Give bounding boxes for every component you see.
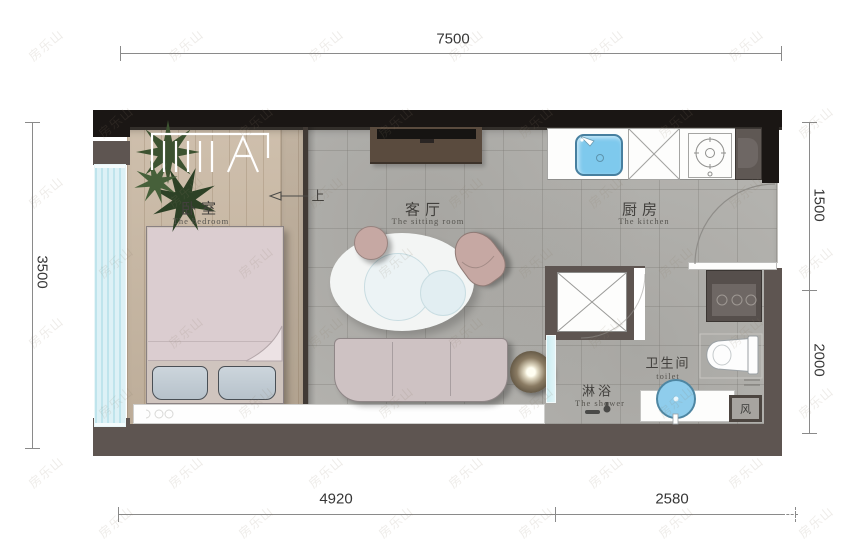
dim-top-tick-r	[781, 46, 782, 61]
dim-right-upper-value: 1500	[811, 188, 828, 221]
bedroom-window-curtain	[95, 165, 125, 426]
bottom-ledge	[133, 404, 545, 424]
room-label-toilet: 卫生间	[645, 353, 690, 372]
vent-label: 风	[740, 401, 751, 417]
bathroom-door-gap	[634, 268, 645, 340]
dim-right-lower-value: 2000	[811, 343, 828, 376]
watermark-text: 房乐山	[24, 171, 67, 212]
wall-right-upper	[762, 110, 779, 183]
dim-left-tick-t	[25, 122, 40, 123]
kitchen-sink	[575, 134, 623, 176]
watermark-text: 房乐山	[24, 311, 67, 352]
step-up-label: 上	[311, 186, 324, 205]
watermark-text: 房乐山	[164, 24, 207, 65]
kitchen-cabinet	[628, 128, 680, 180]
bedroom-platform-strip	[281, 127, 303, 424]
pillow-left	[152, 366, 208, 400]
shower-tray	[557, 272, 627, 332]
watermark-text: 房乐山	[794, 241, 837, 282]
room-label-kitchen-en: The kitchen	[618, 216, 669, 226]
dim-bottom-dash	[782, 514, 798, 515]
entry-corridor-edge	[777, 183, 778, 263]
room-label-toilet-en: toilet	[656, 371, 679, 381]
watermark-text: 房乐山	[724, 451, 767, 492]
armchair-round	[354, 226, 388, 260]
watermark-text: 房乐山	[724, 24, 767, 65]
sofa-seam-1	[392, 342, 393, 396]
dim-bottom-tick-m	[555, 507, 556, 522]
room-label-shower-en: The shower	[575, 398, 625, 408]
dim-bottom-right-value: 2580	[655, 491, 688, 508]
sofa	[334, 338, 508, 402]
divider-shadow	[308, 127, 316, 424]
pillow-right	[218, 366, 276, 400]
watermark-text: 房乐山	[304, 451, 347, 492]
watermark-text: 房乐山	[234, 501, 277, 542]
vanity-counter	[640, 390, 735, 422]
dim-top-value: 7500	[436, 31, 469, 48]
watermark-text: 房乐山	[514, 501, 557, 542]
watermark-text: 房乐山	[584, 24, 627, 65]
sofa-seam-2	[450, 342, 451, 396]
rug-circle-small	[420, 270, 466, 316]
wall-left-stub	[93, 141, 130, 165]
entry-threshold	[688, 262, 777, 270]
stove	[688, 133, 732, 178]
room-label-sitting-en: The sitting room	[392, 216, 465, 226]
dim-top-tick-l	[120, 46, 121, 61]
washing-machine-panel	[712, 284, 756, 316]
watermark-text: 房乐山	[164, 451, 207, 492]
watermark-text: 房乐山	[374, 501, 417, 542]
shower-glass-panel	[546, 335, 556, 403]
dim-bottom-left-value: 4920	[319, 491, 352, 508]
dim-top-line	[120, 53, 782, 54]
watermark-text: 房乐山	[304, 24, 347, 65]
dim-left-value: 3500	[34, 255, 51, 288]
room-label-bedroom-en: The bedroom	[173, 216, 230, 226]
fridge-inner	[738, 138, 758, 168]
bed-duvet-seam	[148, 341, 282, 342]
dim-right-tick-m	[802, 290, 817, 291]
dim-right-tick-t	[802, 122, 817, 123]
dim-bottom-line	[118, 514, 782, 515]
watermark-text: 房乐山	[794, 501, 837, 542]
dim-left-tick-b	[25, 448, 40, 449]
dim-right-tick-b	[802, 433, 817, 434]
watermark-text: 房乐山	[444, 451, 487, 492]
floorplan-canvas: 风	[0, 0, 850, 545]
room-label-shower: 淋浴	[582, 381, 614, 400]
wall-left-corner	[93, 110, 130, 137]
watermark-text: 房乐山	[794, 381, 837, 422]
dim-right-line	[809, 122, 810, 433]
watermark-text: 房乐山	[584, 451, 627, 492]
dim-bottom-tick-l	[118, 507, 119, 522]
watermark-text: 房乐山	[24, 451, 67, 492]
vent-shaft: 风	[729, 395, 762, 422]
watermark-text: 房乐山	[94, 501, 137, 542]
tv	[377, 129, 476, 139]
watermark-text: 房乐山	[24, 24, 67, 65]
wall-bottom	[93, 424, 782, 456]
